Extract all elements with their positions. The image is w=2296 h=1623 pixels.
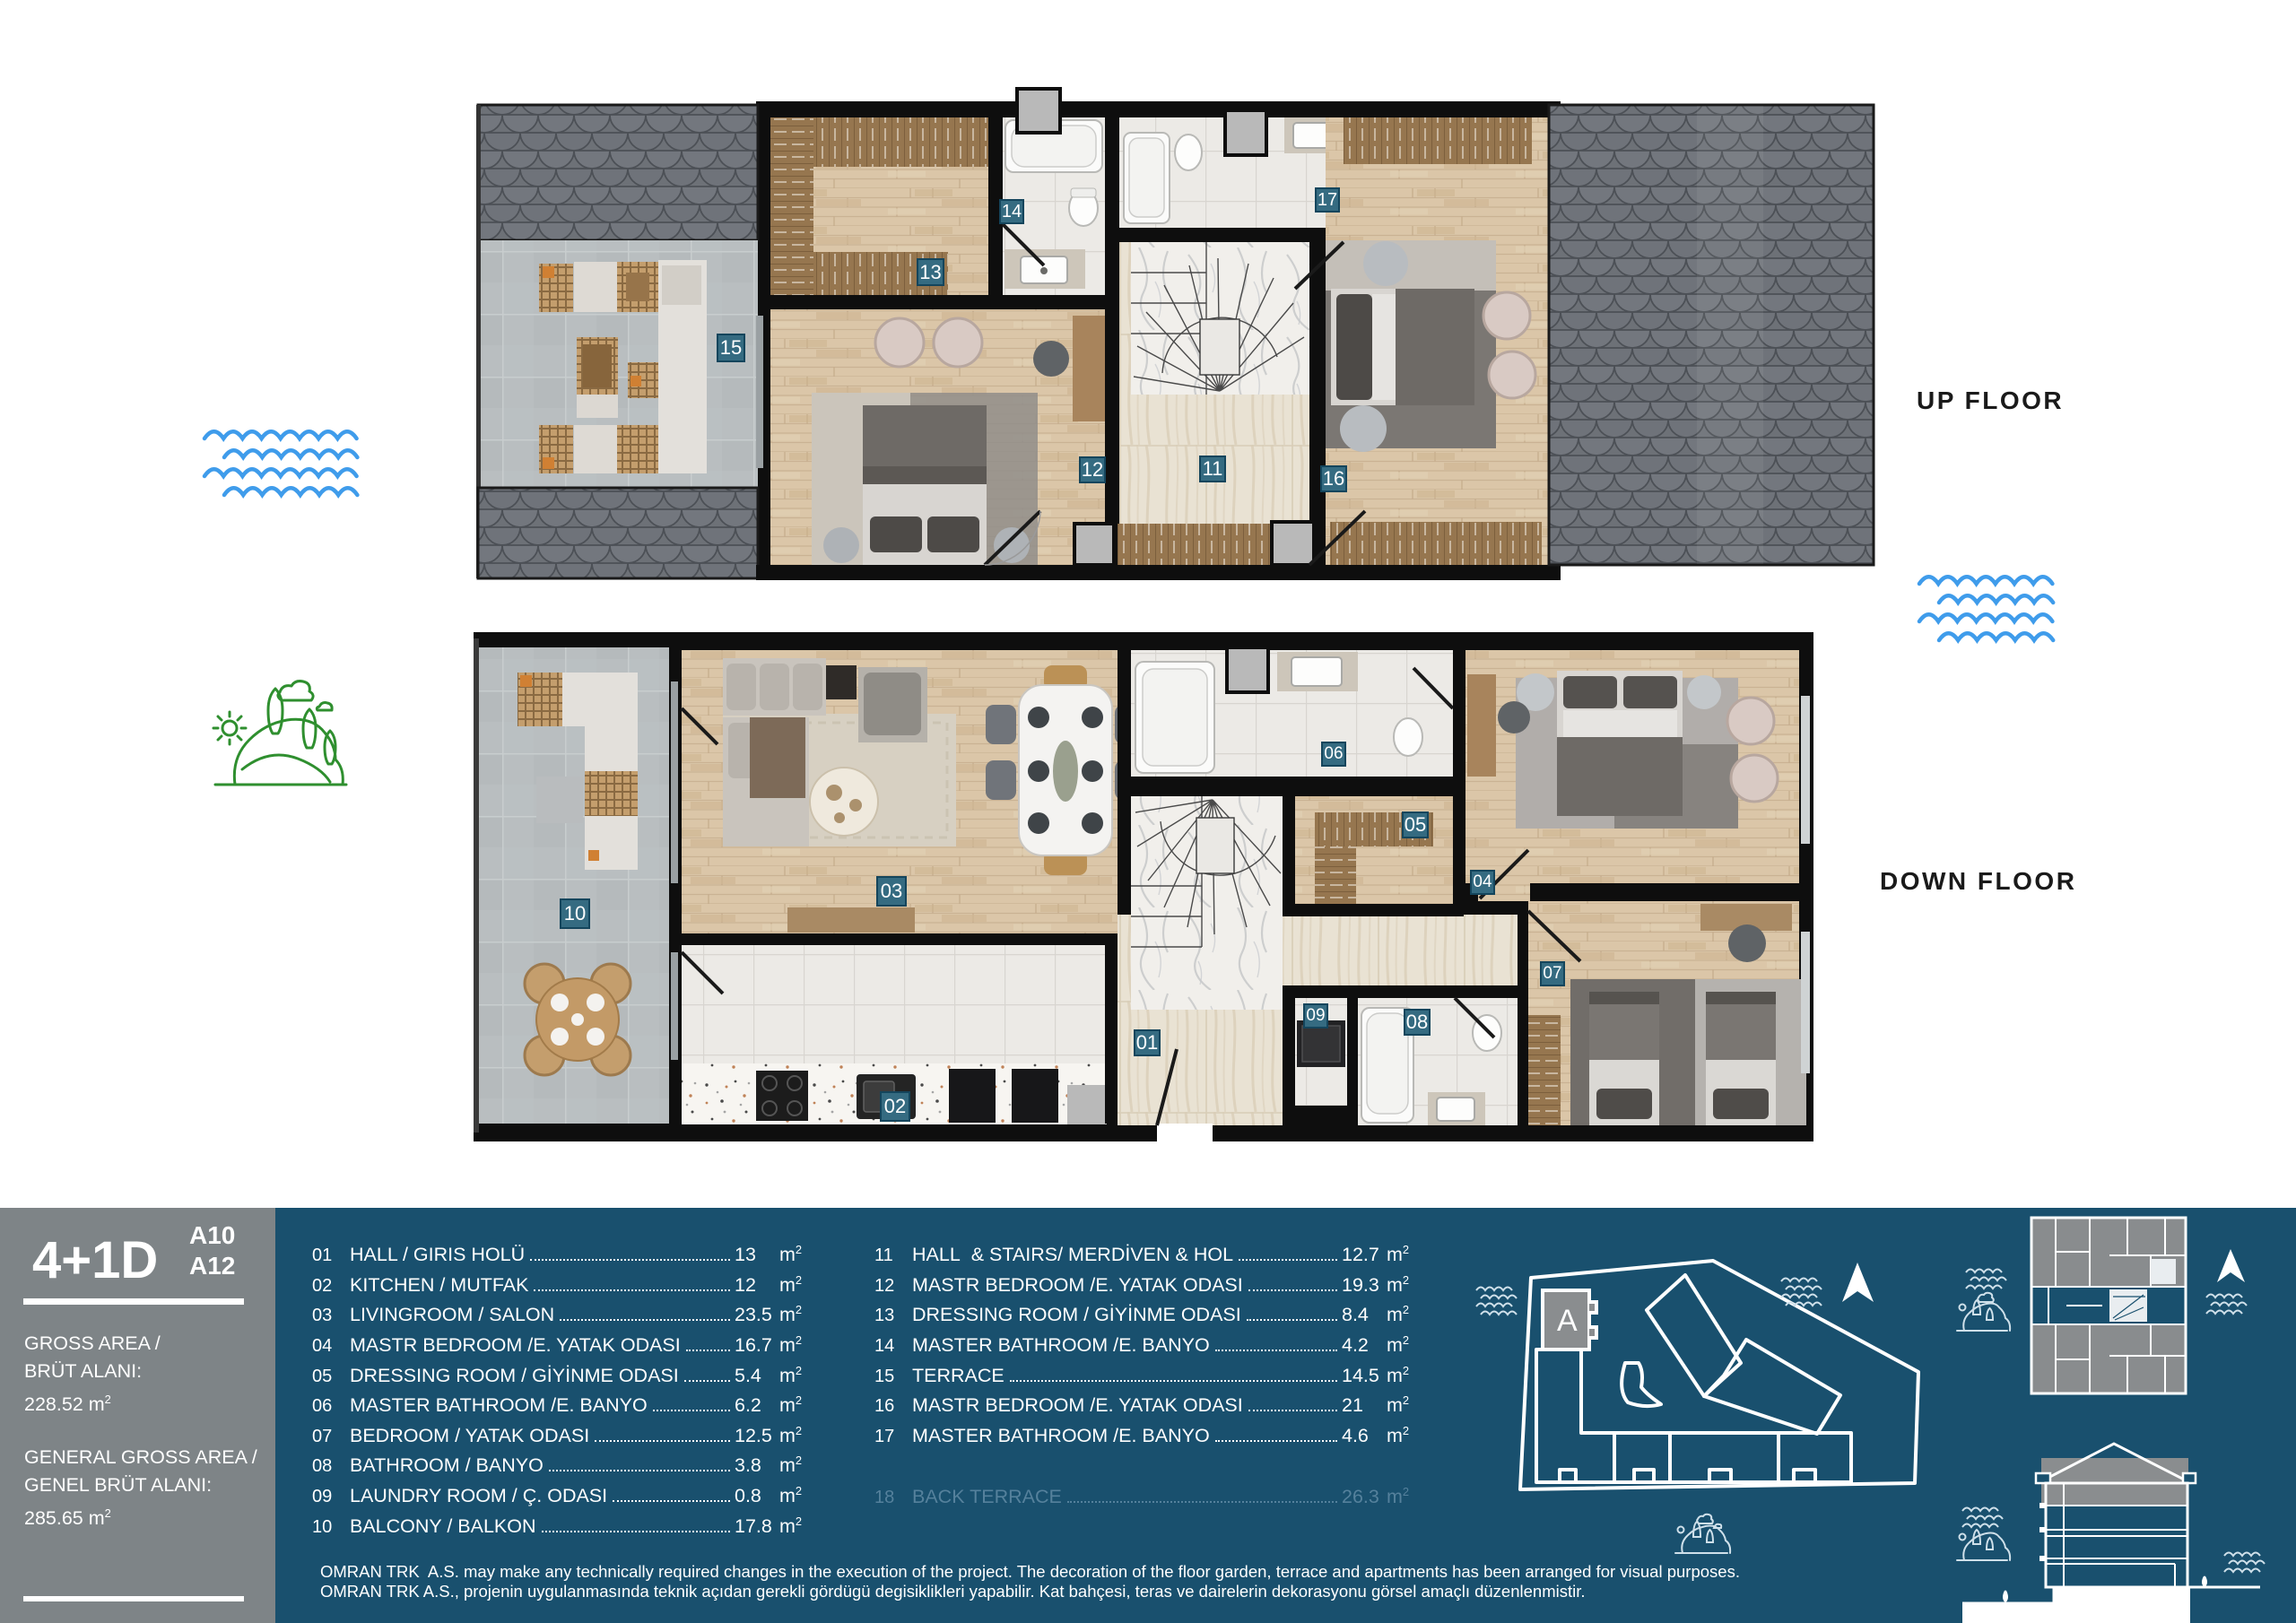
svg-text:A: A: [1557, 1304, 1578, 1338]
